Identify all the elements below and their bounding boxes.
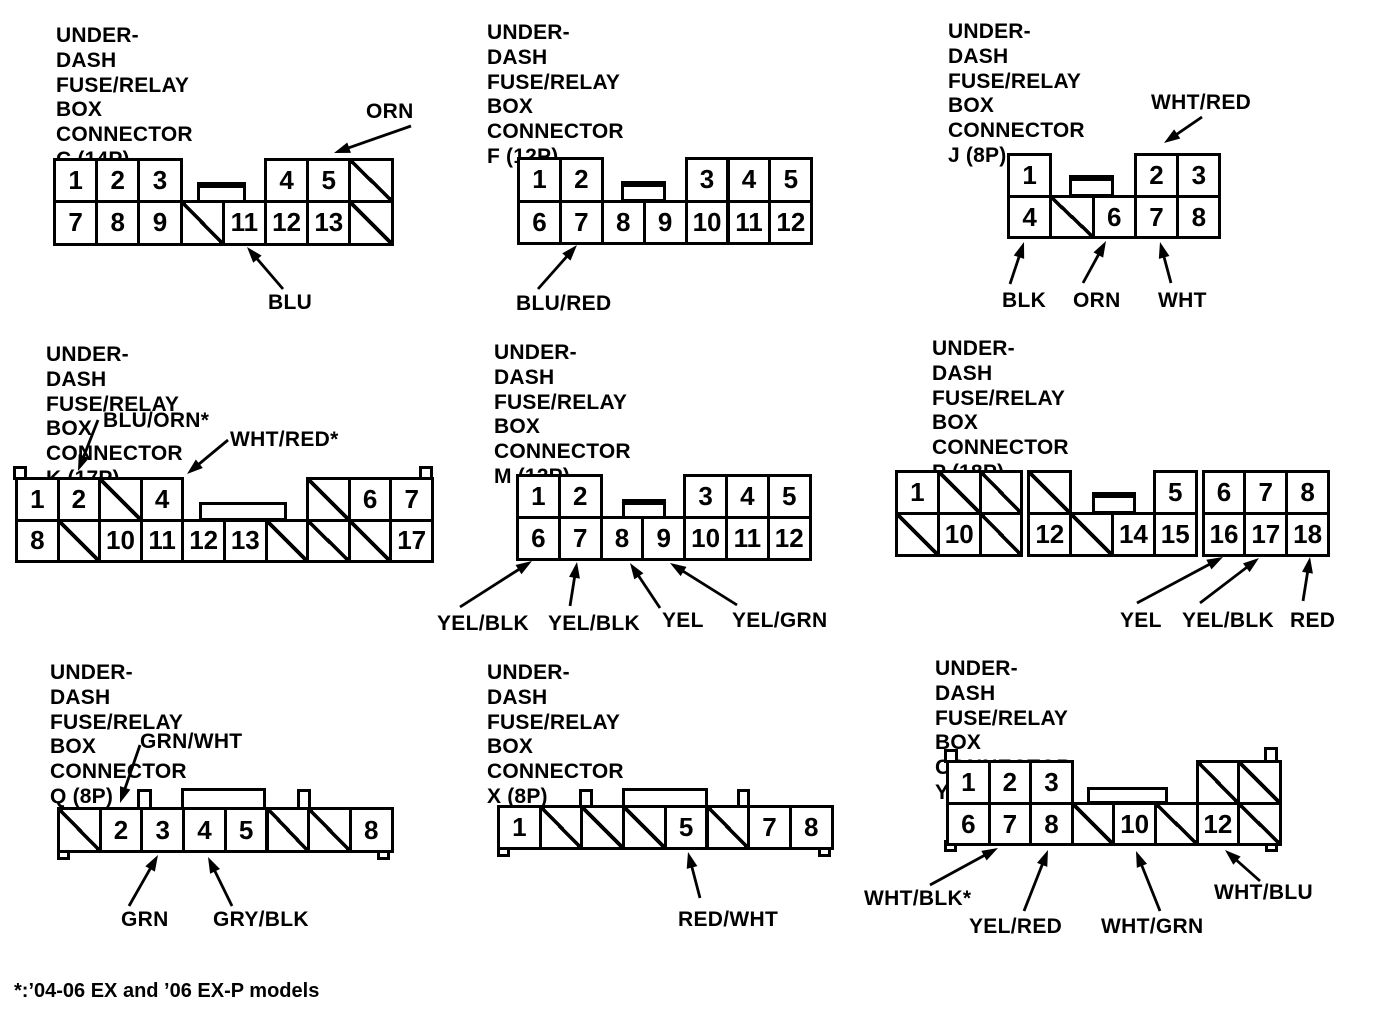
pin-Q-2: 2 — [99, 807, 144, 853]
pin-C-11: 11 — [222, 200, 267, 245]
wire-arrow — [1200, 558, 1259, 603]
blank-cell-C — [348, 158, 393, 203]
pin-J-1: 1 — [1007, 153, 1052, 198]
wire-arrow — [538, 245, 577, 289]
pin-M-5: 5 — [767, 474, 812, 519]
wire-arrow — [630, 563, 660, 608]
footnote: *:’04-06 EX and ’06 EX-P models — [14, 980, 319, 1003]
pin-Y-3: 3 — [1029, 760, 1074, 805]
pin-J-2: 2 — [1134, 153, 1179, 198]
pin-K-1: 1 — [15, 477, 60, 522]
pin-K-17: 17 — [389, 519, 434, 564]
wire-arrow — [569, 562, 580, 606]
wire-label-K-1: WHT/RED* — [230, 428, 339, 452]
pin-P-6: 6 — [1202, 470, 1247, 515]
pin-C-4: 4 — [264, 158, 309, 203]
pin-F-1: 1 — [517, 157, 562, 203]
pin-C-8: 8 — [95, 200, 140, 245]
wire-arrow — [1136, 851, 1160, 911]
pin-F-2: 2 — [559, 157, 604, 203]
pin-C-1: 1 — [53, 158, 98, 203]
pin-F-8: 8 — [601, 200, 646, 246]
blank-cell-P — [1069, 512, 1114, 557]
pin-M-3: 3 — [683, 474, 728, 519]
pin-J-4: 4 — [1007, 195, 1052, 240]
pin-Q-3: 3 — [140, 807, 185, 853]
wire-label-J-3: WHT — [1158, 289, 1207, 313]
pin-M-6: 6 — [516, 516, 561, 561]
blank-cell-Q — [266, 807, 311, 853]
pin-C-5: 5 — [306, 158, 351, 203]
wire-label-M-1: YEL/BLK — [548, 612, 640, 636]
wire-arrow — [670, 563, 737, 605]
pin-M-2: 2 — [558, 474, 603, 519]
blank-cell-P — [979, 470, 1024, 515]
connector-M-title: UNDER-DASH FUSE/RELAY BOX CONNECTOR M (1… — [494, 341, 631, 490]
latch-mid-line — [625, 502, 663, 505]
pin-X-7: 7 — [747, 805, 792, 850]
pin-F-10: 10 — [685, 200, 730, 246]
connector-P-title: UNDER-DASH FUSE/RELAY BOX CONNECTOR P (1… — [932, 337, 1069, 486]
pin-M-9: 9 — [641, 516, 686, 561]
pin-K-6: 6 — [348, 477, 393, 522]
wire-label-J-1: BLK — [1002, 289, 1046, 313]
wire-arrow — [1137, 557, 1223, 603]
blank-cell-Q — [307, 807, 352, 853]
pin-F-4: 4 — [727, 157, 772, 203]
wire-arrow — [208, 857, 232, 906]
pin-P-7: 7 — [1243, 470, 1288, 515]
pin-P-14: 14 — [1111, 512, 1156, 557]
pin-M-11: 11 — [725, 516, 770, 561]
wire-label-K-0: BLU/ORN* — [103, 409, 209, 433]
wire-arrow — [1302, 557, 1313, 601]
blank-cell-K — [348, 519, 393, 564]
latch-mid-line — [200, 185, 243, 188]
blank-cell-Y — [1237, 802, 1282, 847]
pin-Y-6: 6 — [946, 802, 991, 847]
pin-M-7: 7 — [558, 516, 603, 561]
pin-P-10: 10 — [937, 512, 982, 557]
connector-J-latch — [1069, 175, 1114, 197]
pin-C-3: 3 — [137, 158, 182, 203]
pin-M-4: 4 — [725, 474, 770, 519]
latch-mid-line — [624, 184, 663, 187]
wire-label-Y-0: WHT/BLK* — [864, 887, 971, 911]
wire-arrow — [930, 848, 998, 885]
latch-mid-line — [1072, 178, 1111, 181]
blank-cell-C — [180, 200, 225, 245]
blank-cell-X — [580, 805, 625, 850]
wire-arrow — [187, 440, 228, 474]
wire-arrow — [1083, 241, 1106, 283]
blank-cell-K — [306, 519, 351, 564]
wire-arrow — [687, 852, 700, 898]
wire-arrow — [1225, 850, 1260, 881]
wire-label-C-1: BLU — [268, 291, 312, 315]
blank-cell-P — [979, 512, 1024, 557]
blank-cell-K — [265, 519, 310, 564]
pin-C-2: 2 — [95, 158, 140, 203]
pin-K-4: 4 — [140, 477, 185, 522]
pin-M-1: 1 — [516, 474, 561, 519]
blank-cell-Y — [1237, 760, 1282, 805]
pin-K-12: 12 — [181, 519, 226, 564]
pin-P-18: 18 — [1285, 512, 1330, 557]
pin-X-5: 5 — [664, 805, 709, 850]
blank-cell-X — [622, 805, 667, 850]
wire-label-M-2: YEL — [662, 609, 704, 633]
wire-arrow — [1164, 117, 1202, 143]
pin-Y-10: 10 — [1112, 802, 1157, 847]
wire-label-M-3: YEL/GRN — [732, 609, 827, 633]
blank-cell-Y — [1071, 802, 1116, 847]
pin-Q-4: 4 — [182, 807, 227, 853]
pin-P-5: 5 — [1153, 470, 1198, 515]
wire-arrow — [1159, 242, 1171, 283]
pin-F-12: 12 — [768, 200, 813, 246]
blank-cell-K — [98, 477, 143, 522]
pin-K-7: 7 — [389, 477, 434, 522]
connector-J-title: UNDER-DASH FUSE/RELAY BOX CONNECTOR J (8… — [948, 20, 1085, 169]
pin-P-1: 1 — [895, 470, 940, 515]
pin-P-12: 12 — [1027, 512, 1072, 557]
pin-F-7: 7 — [559, 200, 604, 246]
wire-arrow — [1024, 850, 1048, 911]
pin-Q-8: 8 — [349, 807, 394, 853]
pin-Y-1: 1 — [946, 760, 991, 805]
blank-cell-X — [539, 805, 584, 850]
pin-K-8: 8 — [15, 519, 60, 564]
pin-M-10: 10 — [683, 516, 728, 561]
pin-P-17: 17 — [1243, 512, 1288, 557]
wire-label-Y-2: WHT/GRN — [1101, 915, 1203, 939]
wire-label-J-2: ORN — [1073, 289, 1121, 313]
pin-P-8: 8 — [1285, 470, 1330, 515]
wire-label-X-0: RED/WHT — [678, 908, 778, 932]
wire-arrow — [1010, 242, 1024, 284]
pin-M-8: 8 — [600, 516, 645, 561]
pin-C-12: 12 — [264, 200, 309, 245]
pin-J-3: 3 — [1176, 153, 1221, 198]
pin-P-15: 15 — [1153, 512, 1198, 557]
blank-cell-C — [348, 200, 393, 245]
pin-Y-2: 2 — [988, 760, 1033, 805]
wire-label-F-0: BLU/RED — [516, 292, 611, 316]
wire-arrow — [247, 247, 283, 289]
pin-K-2: 2 — [57, 477, 102, 522]
pin-X-1: 1 — [497, 805, 542, 850]
pin-K-11: 11 — [140, 519, 185, 564]
pin-F-3: 3 — [685, 157, 730, 203]
blank-cell-Q — [57, 807, 102, 853]
pin-P-16: 16 — [1202, 512, 1247, 557]
blank-cell-X — [706, 805, 751, 850]
wire-label-P-2: RED — [1290, 609, 1335, 633]
wire-label-P-1: YEL/BLK — [1182, 609, 1274, 633]
wire-label-P-0: YEL — [1120, 609, 1162, 633]
pin-C-7: 7 — [53, 200, 98, 245]
blank-cell-Y — [1154, 802, 1199, 847]
pin-J-8: 8 — [1176, 195, 1221, 240]
pin-F-6: 6 — [517, 200, 562, 246]
wire-label-Q-2: GRY/BLK — [213, 908, 309, 932]
blank-cell-P — [937, 470, 982, 515]
latch-mid-line — [1095, 495, 1133, 498]
pin-J-6: 6 — [1092, 195, 1137, 240]
pin-Q-5: 5 — [224, 807, 269, 853]
wire-arrow — [334, 126, 411, 153]
blank-cell-J — [1049, 195, 1094, 240]
fuse-relay-connector-diagram-page: *:’04-06 EX and ’06 EX-P models UNDER-DA… — [0, 0, 1392, 1014]
pin-J-7: 7 — [1134, 195, 1179, 240]
wire-arrow — [460, 561, 532, 607]
blank-cell-Y — [1196, 760, 1241, 805]
blank-cell-K — [306, 477, 351, 522]
connector-C-title: UNDER-DASH FUSE/RELAY BOX CONNECTOR C (1… — [56, 24, 193, 173]
pin-Y-12: 12 — [1196, 802, 1241, 847]
wire-label-M-0: YEL/BLK — [437, 612, 529, 636]
wire-label-J-0: WHT/RED — [1151, 91, 1251, 115]
pin-C-13: 13 — [306, 200, 351, 245]
wire-arrow — [129, 855, 158, 906]
pin-Y-7: 7 — [988, 802, 1033, 847]
pin-X-8: 8 — [789, 805, 834, 850]
connector-F-title: UNDER-DASH FUSE/RELAY BOX CONNECTOR F (1… — [487, 21, 624, 170]
wire-label-Q-0: GRN/WHT — [140, 730, 242, 754]
pin-K-10: 10 — [98, 519, 143, 564]
wire-label-C-0: ORN — [366, 100, 414, 124]
pin-K-13: 13 — [223, 519, 268, 564]
pin-F-5: 5 — [768, 157, 813, 203]
pin-Y-8: 8 — [1029, 802, 1074, 847]
blank-cell-P — [1027, 470, 1072, 515]
blank-cell-P — [895, 512, 940, 557]
connector-P-latch — [1092, 492, 1136, 514]
wire-label-Y-3: WHT/BLU — [1214, 881, 1313, 905]
pin-C-9: 9 — [137, 200, 182, 245]
pin-F-11: 11 — [727, 200, 772, 246]
wire-label-Q-1: GRN — [121, 908, 169, 932]
connector-X-title: UNDER-DASH FUSE/RELAY BOX CONNECTOR X (8… — [487, 661, 624, 810]
blank-cell-K — [57, 519, 102, 564]
pin-F-9: 9 — [643, 200, 688, 246]
wire-label-Y-1: YEL/RED — [969, 915, 1062, 939]
pin-M-12: 12 — [767, 516, 812, 561]
